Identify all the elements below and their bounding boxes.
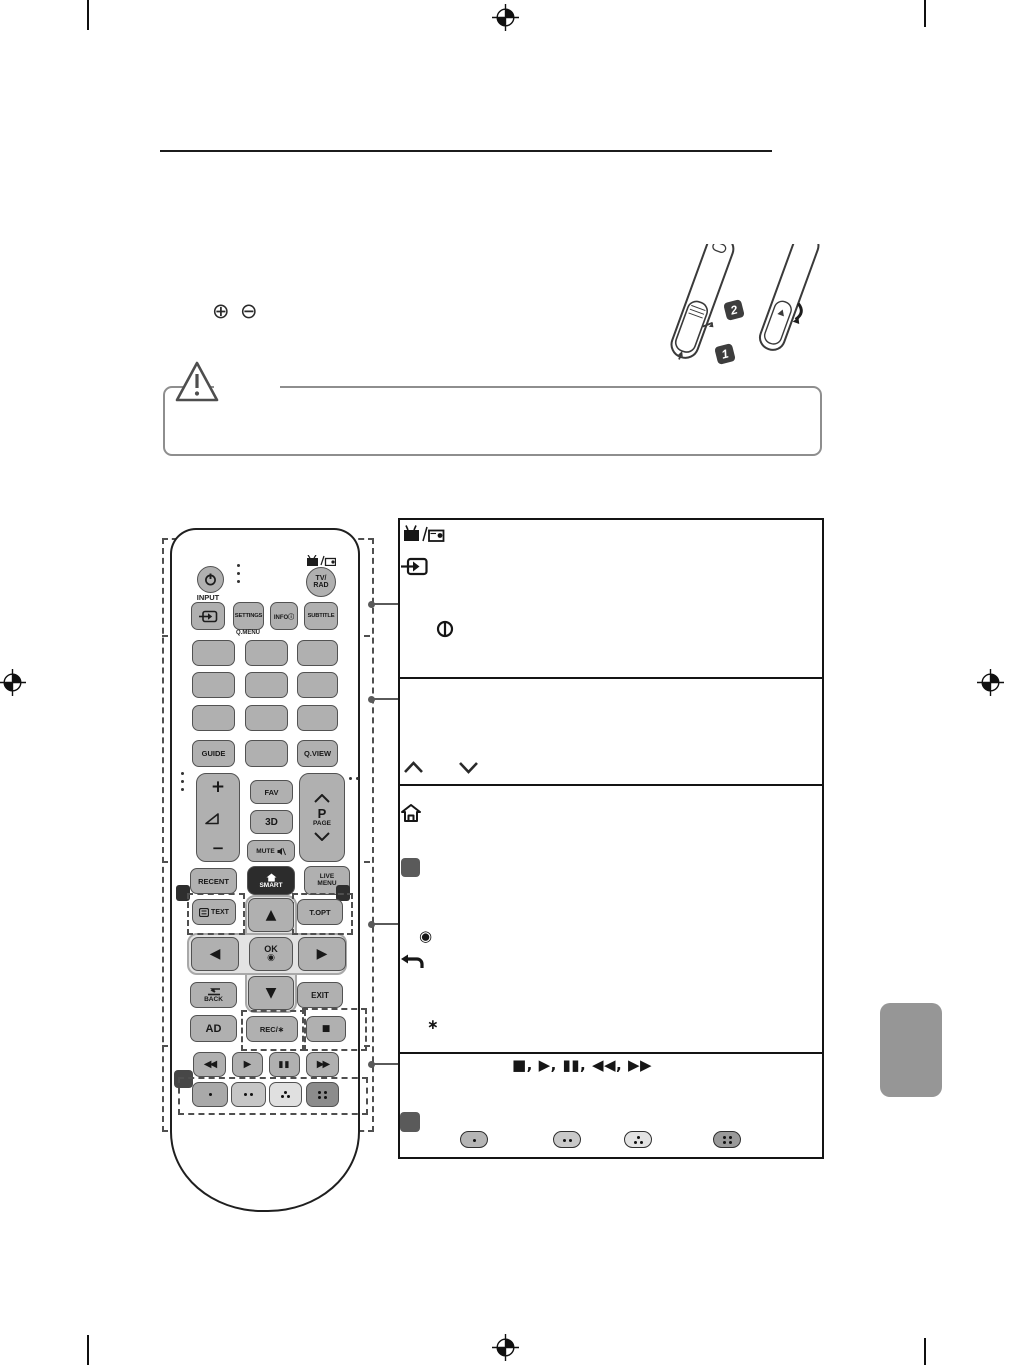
chevron-up-icon — [314, 794, 330, 803]
description-row-4: ■, ▶, ▮▮, ◀◀, ▶▶ — [400, 1054, 822, 1157]
leader-line-section1 — [371, 603, 399, 605]
info-button: INFOⓘ — [270, 602, 298, 630]
nav-up-button: ▲ — [248, 898, 294, 932]
text-button: TEXT — [192, 899, 236, 925]
3d-button: 3D — [250, 810, 293, 834]
ok-button: OK ◉ — [249, 937, 293, 971]
ok-symbol: ◉ — [419, 927, 432, 945]
section-heading-rule — [160, 150, 772, 152]
number-button — [297, 640, 338, 666]
battery-minus-symbol: ⊖ — [240, 299, 258, 323]
number-button — [192, 672, 235, 698]
crop-mark-bottom-right — [924, 1338, 926, 1365]
pause-button: ▮▮ — [269, 1052, 300, 1077]
yellow-color-button — [269, 1082, 302, 1107]
exit-button: EXIT — [297, 982, 343, 1008]
smart-button: SMART — [247, 866, 295, 895]
number-button — [245, 705, 288, 731]
leader-dot — [349, 777, 352, 780]
forward-button: ▶▶ — [306, 1052, 339, 1077]
description-row-2 — [400, 679, 822, 786]
leader-dot — [237, 564, 240, 567]
tv-radio-mini-icon — [306, 555, 336, 566]
topt-button: T.OPT — [297, 899, 343, 925]
one-dot-pill — [460, 1131, 488, 1148]
guide-button: GUIDE — [192, 740, 235, 767]
chevron-up-icon — [403, 761, 424, 774]
tv-radio-icon — [403, 524, 445, 542]
volume-down-label: − — [197, 839, 239, 857]
crop-mark-top-left — [87, 0, 89, 30]
number-button — [192, 705, 235, 731]
chevron-down-icon — [314, 832, 330, 841]
registration-mark-right — [977, 669, 1004, 696]
leader-dot — [356, 777, 359, 780]
ad-button: AD — [190, 1015, 237, 1042]
crop-mark-top-right — [924, 0, 926, 27]
mute-icon — [277, 847, 286, 856]
rewind-button: ◀◀ — [193, 1052, 226, 1077]
gray-button-swatch — [401, 858, 420, 877]
registration-mark-bottom — [492, 1334, 519, 1361]
number-button — [245, 640, 288, 666]
leader-dot — [181, 772, 184, 775]
back-arrow-icon — [400, 954, 424, 972]
four-dot-pill — [713, 1131, 741, 1148]
media-control-sequence: ■, ▶, ▮▮, ◀◀, ▶▶ — [512, 1056, 652, 1074]
nav-left-button: ◀ — [191, 937, 239, 971]
nav-right-button: ▶ — [298, 937, 346, 971]
teletext-icon — [199, 908, 209, 917]
qview-button: Q.VIEW — [297, 740, 338, 767]
blue-color-button — [306, 1082, 339, 1107]
two-dot-pill — [553, 1131, 581, 1148]
button-description-table: ◉ ∗ ■, ▶, ▮▮, ◀◀, ▶▶ — [398, 518, 824, 1159]
leader-dot — [181, 780, 184, 783]
stop-button: ■ — [306, 1016, 346, 1042]
green-color-button — [231, 1082, 266, 1107]
three-dot-pill — [624, 1131, 652, 1148]
number-button — [192, 640, 235, 666]
chevron-down-icon — [458, 761, 479, 774]
input-icon — [199, 610, 218, 623]
qmenu-label: Q.MENU — [228, 630, 268, 636]
page-rocker: P PAGE — [299, 773, 345, 862]
number-button — [245, 672, 288, 698]
settings-button: SETTINGS — [233, 602, 264, 630]
battery-plus-symbol: ⊕ — [212, 299, 230, 323]
nav-down-button: ▼ — [248, 976, 294, 1010]
description-row-3: ◉ ∗ — [400, 786, 822, 1054]
number-zero-button — [245, 740, 288, 767]
fav-button: FAV — [250, 780, 293, 804]
page-word-label: PAGE — [313, 821, 331, 828]
battery-installation-figure — [658, 244, 830, 370]
caution-box — [163, 386, 822, 456]
registration-mark-left — [0, 669, 26, 696]
volume-up-label: + — [197, 777, 239, 797]
recent-button: RECENT — [190, 868, 237, 894]
home-icon — [401, 804, 421, 822]
home-icon — [266, 873, 277, 882]
volume-icon — [205, 812, 220, 825]
page-p-label: P — [318, 807, 327, 821]
power-button — [197, 566, 224, 593]
subtitle-button: SUBTITLE — [304, 602, 338, 630]
description-row-1 — [400, 520, 822, 679]
back-arrow-icon — [206, 988, 222, 996]
gray-button-swatch — [400, 1112, 420, 1132]
caution-title-gap — [214, 383, 280, 391]
volume-rocker: + − — [196, 773, 240, 862]
ok-symbol: ◉ — [267, 954, 275, 963]
warning-triangle-icon — [173, 359, 221, 405]
leader-line-section4 — [371, 1063, 399, 1065]
power-icon — [204, 573, 217, 586]
input-button — [191, 602, 225, 630]
page-index-tab — [880, 1003, 942, 1097]
manual-page: ⊕ ⊖ 2 1 — [0, 0, 1013, 1365]
input-icon — [401, 557, 428, 576]
power-circle-icon — [436, 620, 454, 638]
asterisk-symbol: ∗ — [427, 1017, 439, 1033]
registration-mark-top — [492, 4, 519, 31]
leader-line-section2 — [371, 698, 399, 700]
tv-rad-button: TV/RAD — [306, 567, 336, 597]
play-button: ▶ — [232, 1052, 263, 1077]
leader-dot — [237, 580, 240, 583]
input-label: INPUT — [189, 593, 227, 602]
number-button — [297, 705, 338, 731]
number-button — [297, 672, 338, 698]
leader-line-section3 — [371, 923, 399, 925]
leader-dot — [181, 788, 184, 791]
leader-dot — [237, 572, 240, 575]
rec-button: REC/∗ — [246, 1016, 298, 1042]
mute-button: MUTE — [247, 840, 295, 862]
crop-mark-bottom-left — [87, 1335, 89, 1365]
back-button: BACK — [190, 982, 237, 1008]
red-color-button — [192, 1082, 228, 1107]
